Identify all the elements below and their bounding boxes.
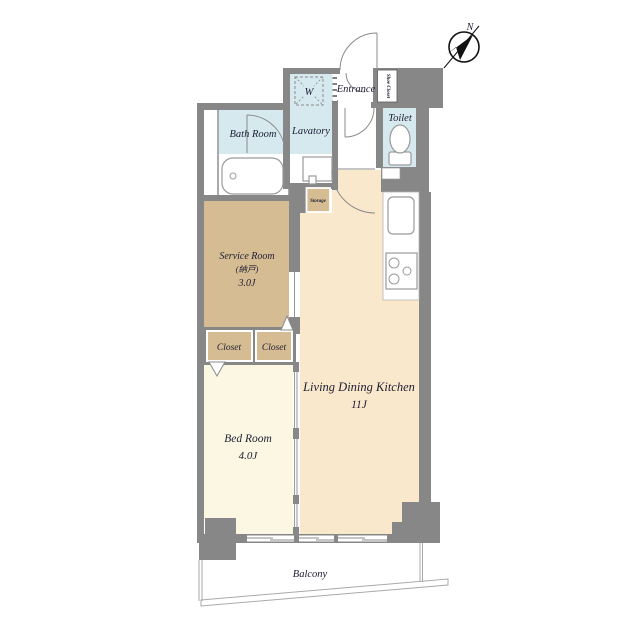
entrance-door-arc [340, 33, 377, 70]
lavatory-label: Lavatory [291, 126, 330, 137]
bedroom-window [247, 536, 294, 542]
bathtub-outline [222, 158, 283, 194]
partition-post-4 [293, 527, 299, 536]
ldk-window-1 [299, 536, 334, 542]
kitchen-stove [386, 253, 417, 289]
ldk-size: 11J [351, 399, 368, 411]
floor-plan: Bath Room Lavatory W Entrance Toilet Sho… [0, 0, 640, 640]
bedroom-size: 4.0J [239, 450, 259, 462]
sink-faucet [309, 176, 316, 184]
toilet-fixture [389, 125, 411, 165]
bath-room-label: Bath Room [230, 129, 277, 140]
closet-left-label: Closet [217, 343, 242, 353]
entrance-label: Entrance [336, 84, 376, 95]
toilet-door-arc [345, 108, 374, 137]
wall-bath-lavatory [283, 73, 290, 184]
service-room-size: 3.0J [238, 278, 257, 289]
sink-basin [303, 157, 332, 181]
closet-right-label: Closet [262, 343, 287, 353]
ldk-name: Living Dining Kitchen [302, 380, 415, 394]
service-room-name: Service Room [219, 251, 274, 262]
bedroom-name: Bed Room [224, 433, 272, 445]
compass-n-label: N [466, 22, 475, 33]
wall-left [197, 103, 204, 540]
compass-north-icon [444, 26, 479, 68]
toilet-tank [389, 152, 411, 165]
balcony-label: Balcony [293, 569, 328, 580]
wall-service-top [197, 195, 296, 201]
lavatory-sink [303, 157, 332, 184]
wall-toilet-left [376, 102, 383, 168]
toilet-label: Toilet [388, 113, 413, 124]
floor-plan-svg: Bath Room Lavatory W Entrance Toilet Sho… [0, 0, 640, 640]
kitchen [383, 192, 419, 300]
toilet-bowl [390, 125, 410, 153]
partition-post-1 [293, 362, 299, 372]
shoe-closet-label: Shoe Closet [385, 74, 390, 99]
kitchen-sink [388, 197, 414, 234]
ldk-window-2 [338, 536, 387, 542]
wall-top-lavatory [283, 68, 340, 74]
wall-toilet-top [371, 102, 417, 108]
bathtub [222, 158, 283, 194]
wall-top-bath [197, 103, 290, 110]
partition-post-2 [293, 428, 299, 439]
windows [247, 536, 387, 542]
storage-label: Storage [310, 199, 327, 204]
wall-service-right-a [289, 188, 300, 272]
wall-right-ldk [419, 192, 431, 502]
balcony-edge [201, 579, 448, 606]
washer-label: W [305, 87, 315, 98]
service-room-kanji: (納戸) [236, 264, 259, 274]
toilet-nook [382, 168, 400, 179]
partition-post-3 [293, 495, 299, 504]
